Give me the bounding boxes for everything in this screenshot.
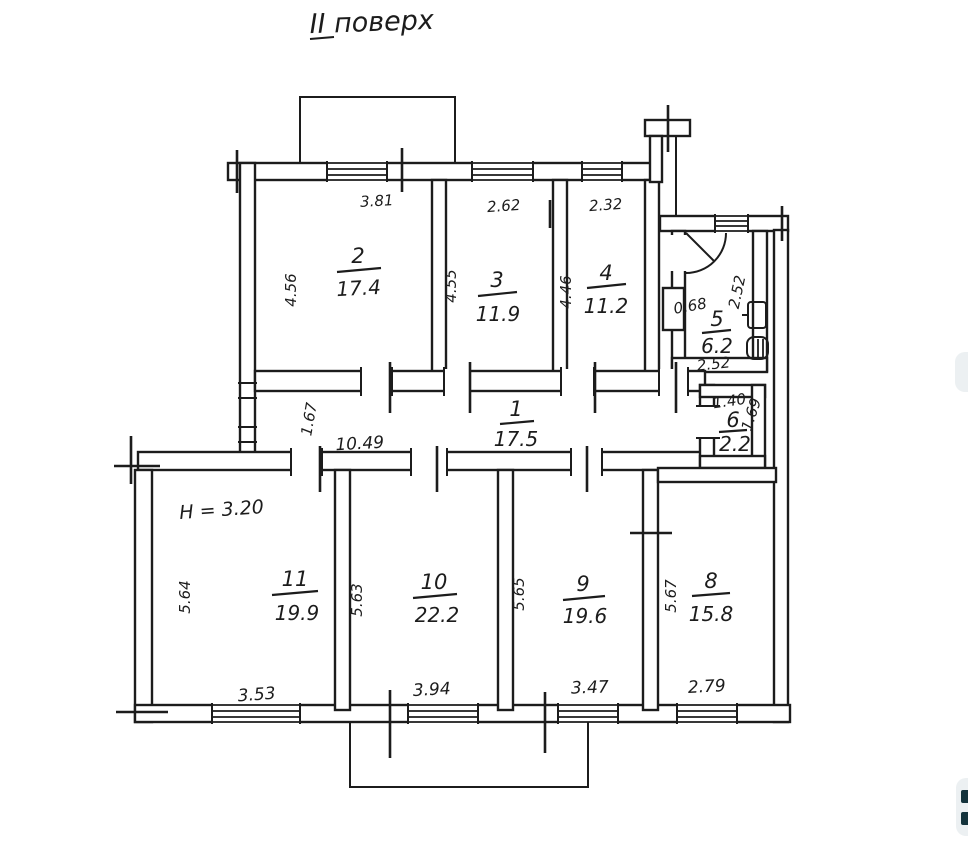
floor-plan-drawing: II поверх: [0, 0, 968, 863]
door-opening-room4: [561, 367, 594, 396]
room-8-fraction-line: [692, 593, 730, 596]
window-symbol-room11: [212, 703, 300, 724]
left-wall-top-block: [240, 163, 255, 458]
room-2-area: 17.4: [336, 275, 382, 301]
room-3-labels: 2.62 3 11.9 4.55: [442, 196, 521, 326]
room-3-fraction-line: [478, 292, 517, 296]
door-opening-bath-lobby: [659, 367, 688, 396]
corridor-labels: 1 17.5 10.49 1.67: [297, 397, 538, 455]
door-opening-room2: [361, 367, 392, 396]
corridor-number: 1: [509, 397, 522, 421]
room-5-width-dim: 2.52: [696, 353, 731, 374]
room-5-fraction-line: [702, 330, 731, 333]
balcony-bottom-outline: [350, 722, 588, 787]
edge-widget-glyph-bottom: [961, 812, 968, 825]
partition-room9-room8: [643, 470, 658, 710]
window-symbol-room2: [327, 161, 387, 182]
room-2-width-dim: 3.81: [360, 191, 394, 211]
bottom-wall-room6: [700, 456, 765, 468]
room-4-number: 4: [599, 261, 612, 285]
room-2-number: 2: [351, 244, 364, 268]
corridor-area: 17.5: [494, 427, 539, 451]
room-9-fraction-line: [563, 596, 605, 600]
room-8-area: 15.8: [689, 602, 734, 626]
room-9-depth-dim: 5.65: [510, 577, 528, 610]
room-8-width-dim: 2.79: [687, 676, 726, 698]
room-11-depth-dim: 5.64: [176, 580, 194, 613]
room-10-fraction-line: [413, 594, 457, 598]
room-11-labels: 11 19.9 5.64 3.53: [176, 567, 319, 706]
window-symbol-room4: [582, 161, 622, 182]
room-9-width-dim: 3.47: [571, 677, 610, 698]
window-symbol-room10: [408, 703, 478, 724]
room-2-fraction-line: [337, 268, 381, 272]
room-3-area: 11.9: [476, 302, 521, 326]
window-symbol-room9: [558, 703, 618, 724]
door-opening-room10: [411, 448, 447, 476]
door-leaf-room5: [686, 233, 714, 261]
room-5-number: 5: [710, 307, 723, 331]
left-exterior-wall-bottom: [135, 470, 152, 722]
room-3-number: 3: [490, 268, 503, 292]
page-title: II поверх: [309, 5, 435, 40]
room-10-number: 10: [421, 570, 448, 594]
room-11-area: 19.9: [275, 601, 320, 625]
corridor-fraction-line: [500, 421, 534, 424]
room-3-width-dim: 2.62: [486, 196, 521, 216]
room-10-width-dim: 3.94: [412, 679, 451, 701]
room-11-width-dim: 3.53: [237, 684, 276, 707]
window-symbol-room8: [677, 703, 737, 724]
window-symbol-room5: [715, 214, 748, 233]
room-10-labels: 10 22.2 5.63 3.94: [348, 570, 459, 701]
scanned-floor-plan-page: II поверх: [0, 0, 968, 863]
room-2-labels: 3.81 2 17.4 4.56: [282, 191, 394, 307]
flue-stub-wall: [650, 136, 662, 182]
balcony-top-outline: [300, 97, 455, 166]
room-5-depth-dim: 2.52: [725, 274, 750, 310]
room-10-depth-dim: 5.63: [348, 583, 366, 616]
room-11-number: 11: [282, 567, 309, 591]
wall-tick-marks: [114, 105, 782, 758]
door-opening-room3: [444, 367, 470, 396]
room-9-labels: 9 19.6 5.65 3.47: [510, 572, 609, 699]
room-8-labels: 8 15.8 5.67 2.79: [662, 569, 733, 698]
room-4-width-dim: 2.32: [588, 195, 623, 215]
room-2-depth-dim: 4.56: [282, 273, 300, 306]
room-9-number: 9: [576, 572, 589, 596]
room-9-area: 19.6: [563, 604, 608, 628]
door-opening-room5: [670, 235, 687, 271]
edge-widget-bottom[interactable]: [956, 778, 968, 836]
room-4-depth-dim: 4.46: [557, 275, 575, 308]
edge-widget-middle[interactable]: [955, 352, 968, 392]
door-opening-room11: [291, 448, 322, 476]
room-6-area: 2.2: [719, 432, 751, 456]
corridor-length-dim: 10.49: [335, 433, 385, 456]
room-4-area: 11.2: [584, 294, 629, 318]
right-wall-room4: [645, 180, 659, 372]
corridor-width-dim: 1.67: [297, 401, 321, 437]
room-8-number: 8: [704, 569, 717, 593]
top-wall-room8: [658, 468, 776, 482]
ceiling-height-note: H = 3.20: [179, 496, 265, 524]
window-symbol-room3: [472, 161, 533, 182]
room-10-area: 22.2: [415, 603, 460, 627]
room-3-depth-dim: 4.55: [442, 269, 460, 302]
room-8-depth-dim: 5.67: [662, 579, 680, 613]
corridor-top-wall: [255, 371, 705, 391]
room-11-fraction-line: [272, 591, 318, 595]
edge-widget-glyph-top: [961, 790, 968, 803]
